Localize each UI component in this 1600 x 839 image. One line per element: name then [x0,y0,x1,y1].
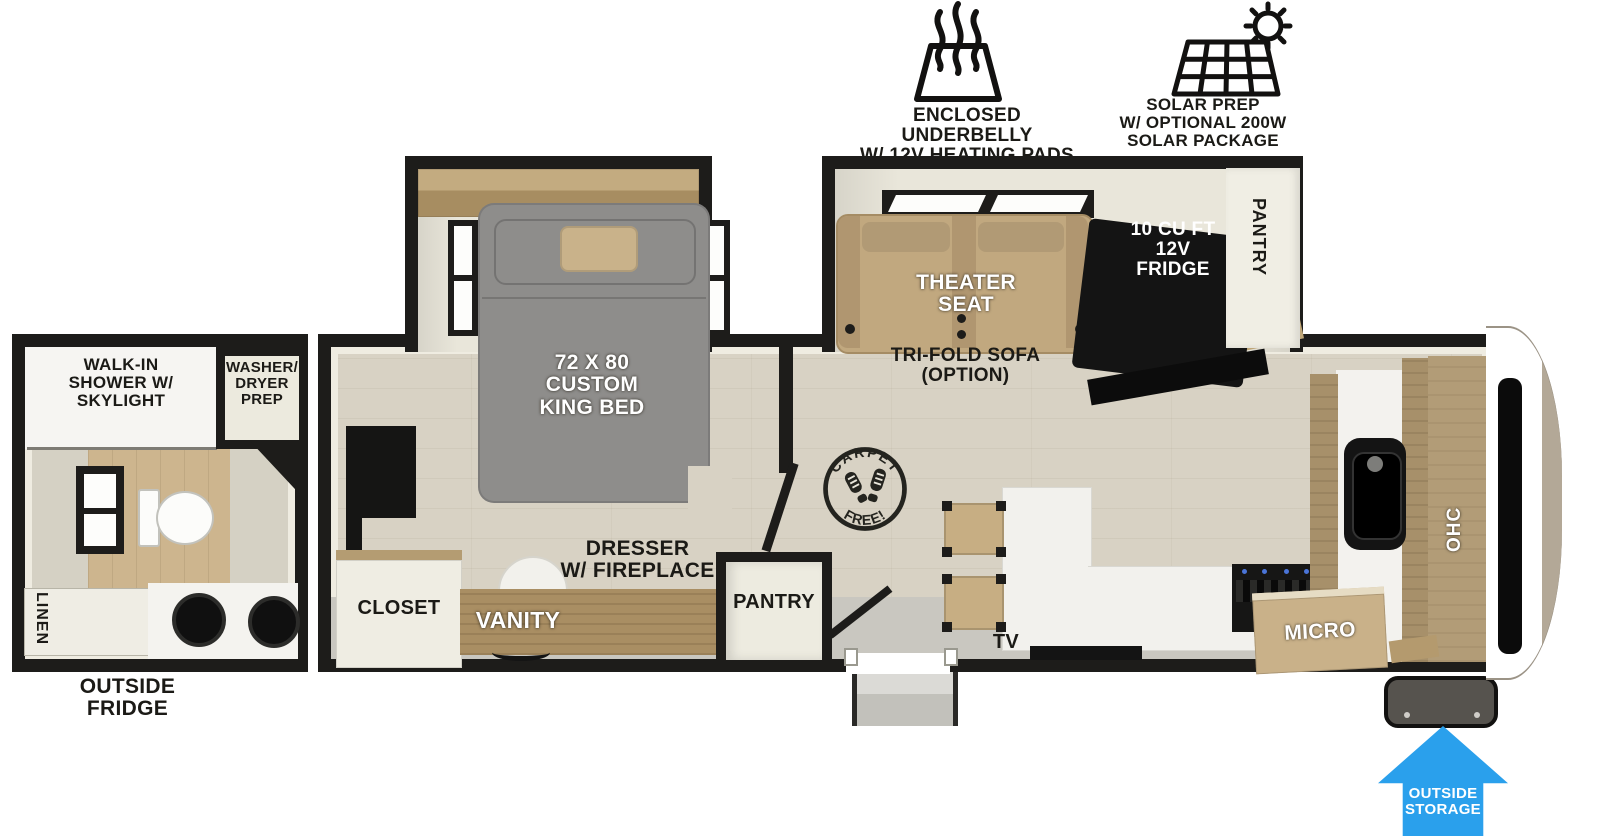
window-pane [990,195,1088,212]
window-pane [888,195,986,212]
bedroom-pantry-label: PANTRY [718,592,830,613]
outside-storage-door [1384,676,1498,728]
floorplan-canvas: ENCLOSED UNDERBELLY W/ 12V HEATING PADS … [0,0,1600,839]
fridge-label: 10 CU FT 12V FRIDGE [1118,220,1228,280]
carpet-free-stamp-icon: CARPET FREE! [818,442,912,536]
rivet-icon [1404,712,1410,718]
stool-leg [942,547,952,557]
burner-light-icon [1242,569,1247,574]
bed-seam [482,297,706,299]
solar-label: SOLAR PREP W/ OPTIONAL 200W SOLAR PACKAG… [1108,96,1298,150]
micro-label: MICRO [1260,618,1381,646]
seat-back [862,222,950,252]
bedroom-window [448,220,478,336]
bed-label: 72 X 80 CUSTOM KING BED [495,352,689,419]
rivet-icon [1474,712,1480,718]
window-pane [84,514,116,546]
stool-leg [942,574,952,584]
seat-back [978,222,1064,252]
window-pane [454,226,472,275]
door-jamb [844,648,858,666]
closet-label: CLOSET [338,598,460,619]
faucet-icon [1367,456,1383,472]
stool-leg [996,574,1006,584]
outside-storage-label: OUTSIDE STORAGE [1398,786,1488,818]
door-jamb [944,648,958,666]
front-cap-window [1498,378,1522,654]
solar-prep-icon [1160,0,1310,100]
pillow [560,226,638,272]
stool-leg [942,622,952,632]
entry-steps [852,668,958,726]
living-tv-icon [1030,646,1142,660]
bathroom-sink-icon [172,593,226,647]
bedroom-tv-icon [346,426,416,518]
heated-underbelly-icon [895,0,1025,104]
linen-label: LINEN [32,592,50,652]
ohc-label: OHC [1444,462,1466,552]
cupholder-icon [957,330,966,339]
trifold-sofa-label: TRI-FOLD SOFA (OPTION) [878,346,1053,386]
microwave: MICRO [1252,587,1388,675]
bar-stool [944,576,1004,630]
recliner-button-icon [845,324,855,334]
kitchen-island [1002,487,1092,651]
bathroom-sink-icon [248,596,300,648]
dresser-fireplace-label: DRESSER W/ FIREPLACE [550,538,725,583]
bed-corner-cutout [688,466,732,522]
shower-glass-divider [27,447,217,450]
stool-leg [996,547,1006,557]
window-pane [454,281,472,330]
vanity-label: VANITY [458,608,578,632]
outside-storage-arrow: OUTSIDE STORAGE [1378,726,1508,836]
vanity-pull-handle [492,644,550,661]
kitchen-sink-icon [1344,438,1406,550]
tv-label: TV [985,632,1027,653]
bathroom-window [76,466,124,554]
entry-door-opening [846,653,950,674]
theater-seat-label: THEATER SEAT [900,272,1032,317]
burner-light-icon [1284,569,1289,574]
living-pantry-label: PANTRY [1248,198,1269,318]
shower-label: WALK-IN SHOWER W/ SKYLIGHT [32,356,210,410]
tall-cabinet [1402,358,1430,662]
burner-light-icon [1262,569,1267,574]
outside-fridge-label: OUTSIDE FRIDGE [55,676,200,721]
washer-dryer-label: WASHER/ DRYER PREP [220,360,304,408]
stool-leg [996,501,1006,511]
toilet-icon [156,491,214,545]
stool-leg [942,501,952,511]
bar-stool [944,503,1004,555]
burner-light-icon [1304,569,1309,574]
window-pane [84,474,116,508]
bedroom-living-wall [779,347,793,473]
